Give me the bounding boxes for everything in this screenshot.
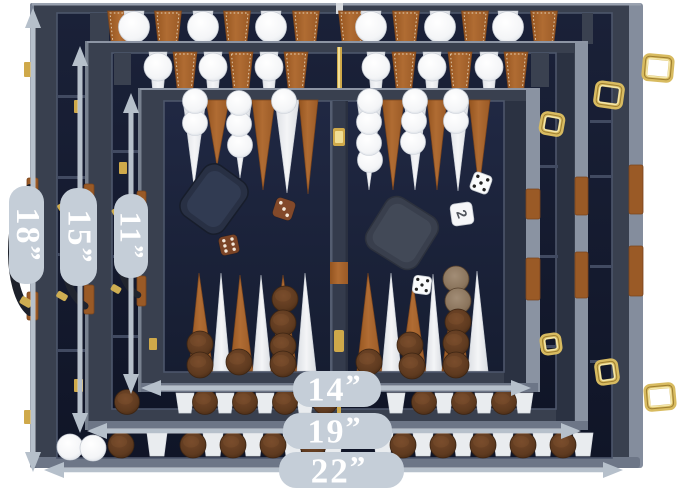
svg-text:15”: 15” — [61, 210, 99, 265]
svg-text:18”: 18” — [9, 208, 47, 263]
